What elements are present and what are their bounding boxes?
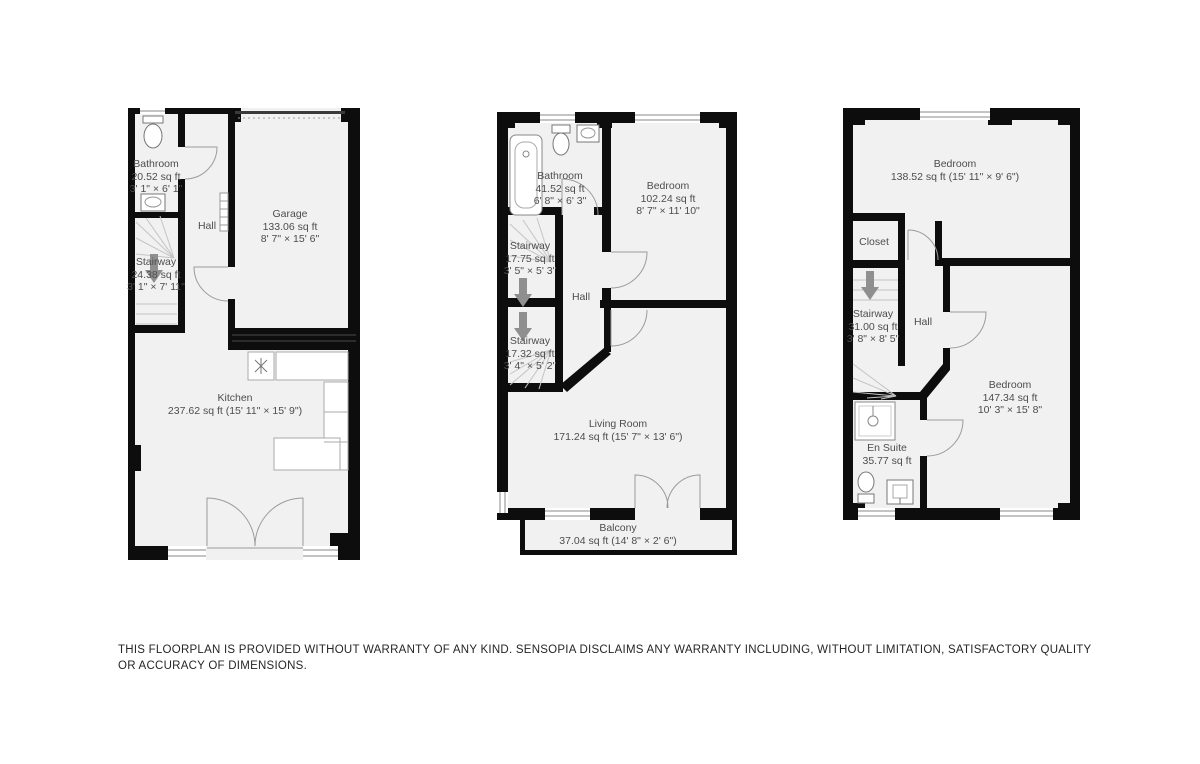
room-label-balcony: Balcony 37.04 sq ft (14' 8" × 2' 6") — [559, 522, 676, 547]
toilet-icon — [552, 125, 570, 155]
room-name: Stairway — [504, 335, 557, 348]
sink-icon — [887, 480, 913, 504]
room-name: En Suite — [862, 442, 911, 455]
room-area: 102.24 sq ft — [636, 193, 700, 206]
room-label-bedroom-top: Bedroom 138.52 sq ft (15' 11" × 9' 6") — [891, 158, 1019, 183]
room-area: 171.24 sq ft (15' 7" × 13' 6") — [553, 431, 682, 444]
room-label-bedroom-right: Bedroom 147.34 sq ft 10' 3" × 15' 8" — [978, 379, 1042, 417]
room-area: 133.06 sq ft — [261, 221, 319, 234]
room-label-stairway-upper: Stairway 17.75 sq ft 3' 5" × 5' 3" — [504, 240, 557, 278]
room-name: Stairway — [504, 240, 557, 253]
room-name: Closet — [859, 236, 889, 249]
sink-icon — [141, 194, 165, 211]
room-label-hall: Hall — [914, 316, 932, 329]
room-name: Hall — [914, 316, 932, 329]
floorplan-page: Bathroom 20.52 sq ft 3' 1" × 6' 1" Stair… — [0, 0, 1200, 764]
room-dims: 3' 4" × 5' 2" — [504, 360, 557, 373]
room-label-ensuite: En Suite 35.77 sq ft — [862, 442, 911, 467]
room-area: 41.52 sq ft — [534, 183, 587, 196]
room-name: Stairway — [127, 256, 185, 269]
floorplan-floor-3: Bedroom 138.52 sq ft (15' 11" × 9' 6") C… — [843, 108, 1080, 520]
room-label-stairway-lower: Stairway 17.32 sq ft 3' 4" × 5' 2" — [504, 335, 557, 373]
room-area: 17.32 sq ft — [504, 348, 557, 361]
toilet-icon — [143, 116, 163, 148]
room-area: 35.77 sq ft — [862, 455, 911, 468]
room-name: Bathroom — [534, 170, 587, 183]
room-label-bathroom: Bathroom 20.52 sq ft 3' 1" × 6' 1" — [130, 158, 183, 196]
floorplan-floor-2: Bathroom 41.52 sq ft 6' 8" × 6' 3" Bedro… — [497, 112, 737, 555]
room-name: Bathroom — [130, 158, 183, 171]
room-name: Bedroom — [891, 158, 1019, 171]
room-label-kitchen: Kitchen 237.62 sq ft (15' 11" × 15' 9") — [168, 392, 302, 417]
room-name: Balcony — [559, 522, 676, 535]
room-label-living-room: Living Room 171.24 sq ft (15' 7" × 13' 6… — [553, 418, 682, 443]
room-name: Kitchen — [168, 392, 302, 405]
room-label-garage: Garage 133.06 sq ft 8' 7" × 15' 6" — [261, 208, 319, 246]
room-dims: 8' 7" × 15' 6" — [261, 233, 319, 246]
room-dims: 3' 1" × 6' 1" — [130, 183, 183, 196]
room-name: Hall — [198, 220, 216, 233]
room-area: 138.52 sq ft (15' 11" × 9' 6") — [891, 171, 1019, 184]
room-area: 17.75 sq ft — [504, 253, 557, 266]
room-area: 37.04 sq ft (14' 8" × 2' 6") — [559, 535, 676, 548]
sink-icon — [577, 125, 599, 142]
room-name: Stairway — [847, 308, 900, 321]
room-label-closet: Closet — [859, 236, 889, 249]
room-name: Garage — [261, 208, 319, 221]
room-area: 24.38 sq ft — [127, 269, 185, 282]
room-dims: 3' 5" × 5' 3" — [504, 265, 557, 278]
room-name: Bedroom — [636, 180, 700, 193]
disclaimer-text: THIS FLOORPLAN IS PROVIDED WITHOUT WARRA… — [118, 643, 1098, 674]
room-dims: 10' 3" × 15' 8" — [978, 404, 1042, 417]
room-area: 237.62 sq ft (15' 11" × 15' 9") — [168, 405, 302, 418]
room-name: Hall — [572, 291, 590, 304]
room-dims: 3' 1" × 7' 11" — [127, 281, 185, 294]
radiator-icon — [220, 193, 228, 231]
room-label-stairway: Stairway 24.38 sq ft 3' 1" × 7' 11" — [127, 256, 185, 294]
room-name: Bedroom — [978, 379, 1042, 392]
room-area: 31.00 sq ft — [847, 321, 900, 334]
room-label-bedroom: Bedroom 102.24 sq ft 8' 7" × 11' 10" — [636, 180, 700, 218]
room-dims: 6' 8" × 6' 3" — [534, 195, 587, 208]
room-dims: 3' 8" × 8' 5" — [847, 333, 900, 346]
shower-icon — [855, 402, 895, 440]
floorplan-floor-1: Bathroom 20.52 sq ft 3' 1" × 6' 1" Stair… — [128, 108, 360, 560]
room-label-hall: Hall — [198, 220, 216, 233]
room-dims: 8' 7" × 11' 10" — [636, 205, 700, 218]
room-area: 147.34 sq ft — [978, 392, 1042, 405]
room-label-bathroom: Bathroom 41.52 sq ft 6' 8" × 6' 3" — [534, 170, 587, 208]
toilet-icon — [858, 472, 874, 503]
room-label-stairway: Stairway 31.00 sq ft 3' 8" × 8' 5" — [847, 308, 900, 346]
room-label-hall: Hall — [572, 291, 590, 304]
room-name: Living Room — [553, 418, 682, 431]
room-area: 20.52 sq ft — [130, 171, 183, 184]
